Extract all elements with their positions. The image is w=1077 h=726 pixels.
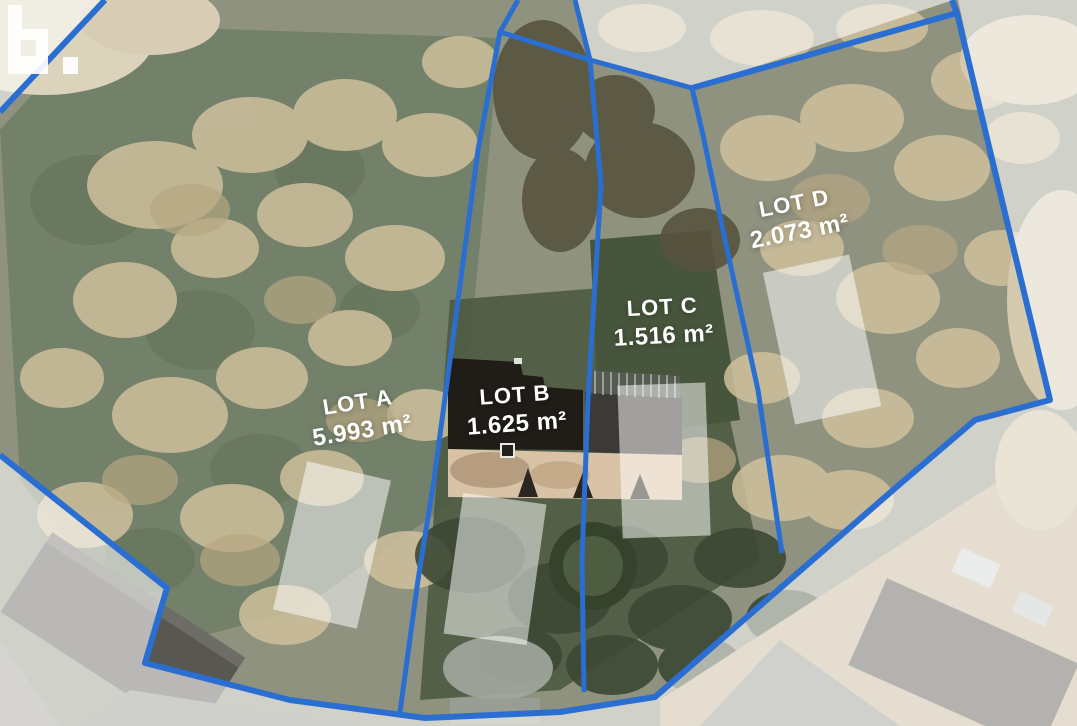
footprint-lot-c — [617, 383, 710, 539]
aerial-lot-map: LOT A 5.993 m² LOT B 1.625 m² LOT C 1.51… — [0, 0, 1077, 726]
brand-logo — [0, 0, 90, 80]
lot-b-name: LOT B — [479, 380, 552, 410]
lot-c-area: 1.516 m² — [613, 318, 714, 353]
lot-c-name: LOT C — [626, 292, 698, 321]
map-graphic — [0, 0, 1077, 726]
lot-b-label: LOT B 1.625 m² — [464, 378, 568, 442]
lot-c-label: LOT C 1.516 m² — [612, 291, 715, 354]
